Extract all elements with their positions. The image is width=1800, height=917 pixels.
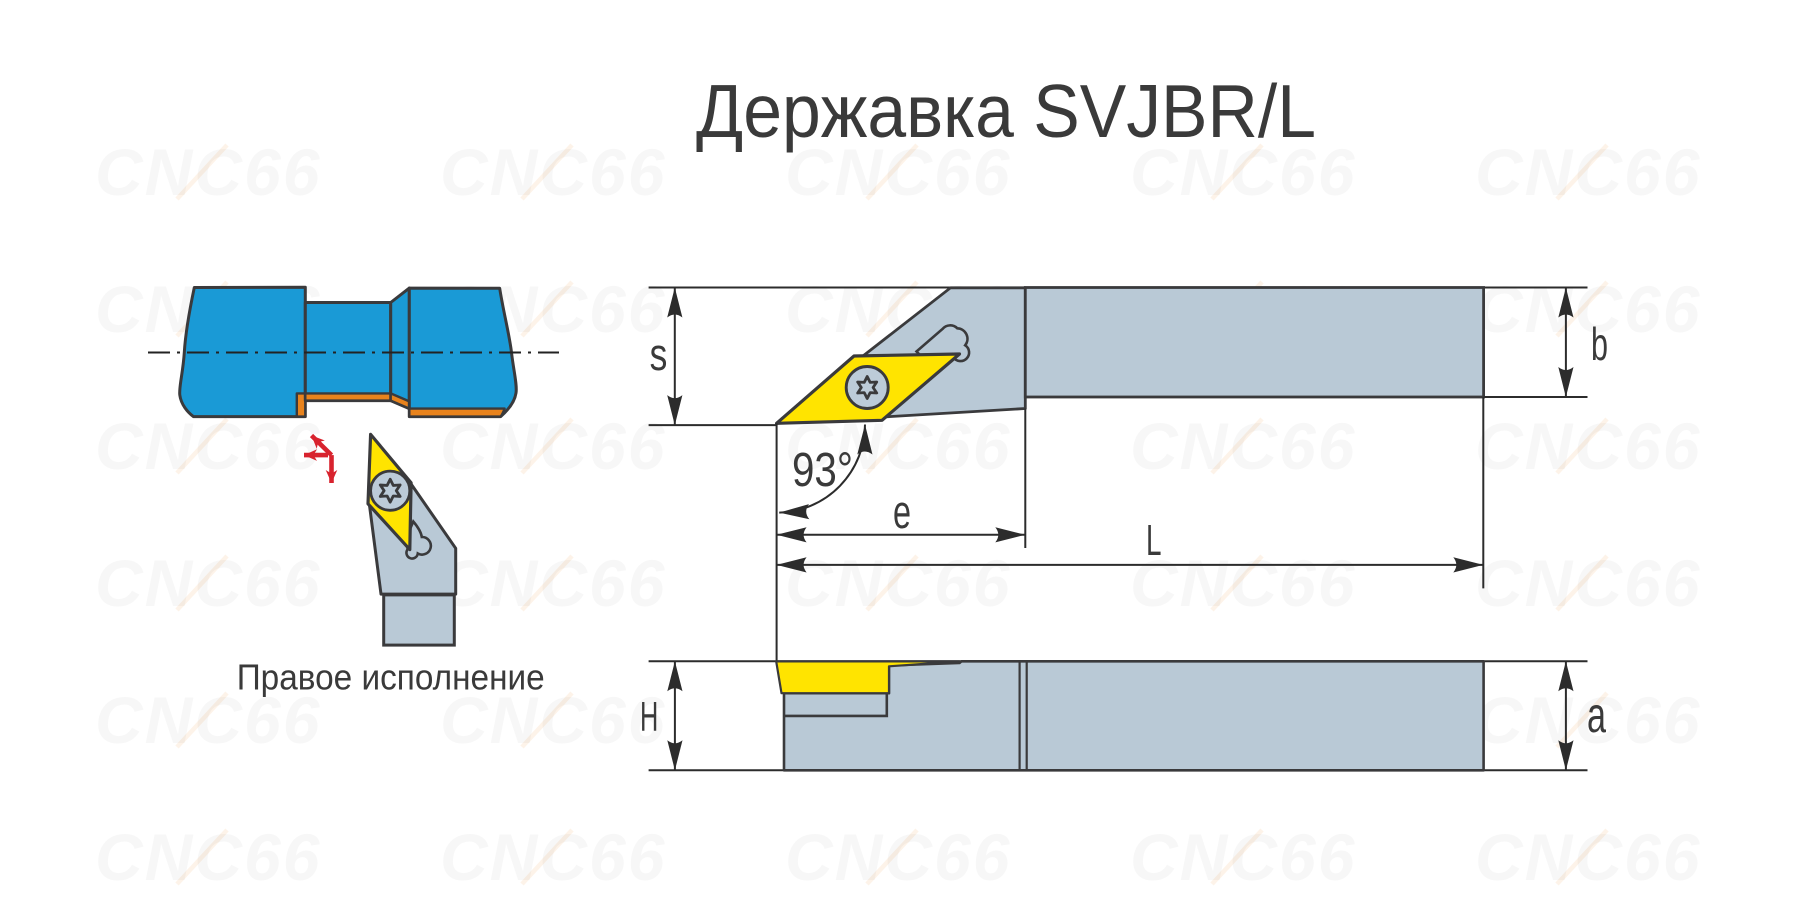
svg-text:CNC66: CNC66 <box>1475 546 1701 620</box>
svg-text:CNC66: CNC66 <box>1475 272 1701 346</box>
svg-text:CNC66: CNC66 <box>440 820 666 894</box>
svg-text:CNC66: CNC66 <box>1130 409 1356 483</box>
svg-text:CNC66: CNC66 <box>440 409 666 483</box>
svg-text:CNC66: CNC66 <box>1130 546 1356 620</box>
svg-text:b: b <box>1591 318 1608 370</box>
svg-text:CNC66: CNC66 <box>785 546 1011 620</box>
svg-text:Державка SVJBR/L: Державка SVJBR/L <box>696 69 1316 153</box>
svg-text:CNC66: CNC66 <box>1475 135 1701 209</box>
svg-text:Правое исполнение: Правое исполнение <box>237 657 545 698</box>
svg-text:93°: 93° <box>792 444 853 497</box>
svg-text:CNC66: CNC66 <box>95 135 321 209</box>
svg-text:CNC66: CNC66 <box>785 820 1011 894</box>
svg-text:CNC66: CNC66 <box>1130 820 1356 894</box>
svg-text:L: L <box>1146 516 1162 565</box>
svg-text:CNC66: CNC66 <box>95 820 321 894</box>
svg-text:H: H <box>640 693 658 740</box>
svg-text:CNC66: CNC66 <box>440 546 666 620</box>
svg-text:CNC66: CNC66 <box>95 546 321 620</box>
svg-text:CNC66: CNC66 <box>1475 820 1701 894</box>
svg-text:e: e <box>893 485 911 538</box>
svg-text:a: a <box>1587 687 1606 743</box>
svg-text:CNC66: CNC66 <box>440 135 666 209</box>
svg-text:CNC66: CNC66 <box>1475 409 1701 483</box>
svg-text:s: s <box>650 329 668 380</box>
svg-text:CNC66: CNC66 <box>95 409 321 483</box>
